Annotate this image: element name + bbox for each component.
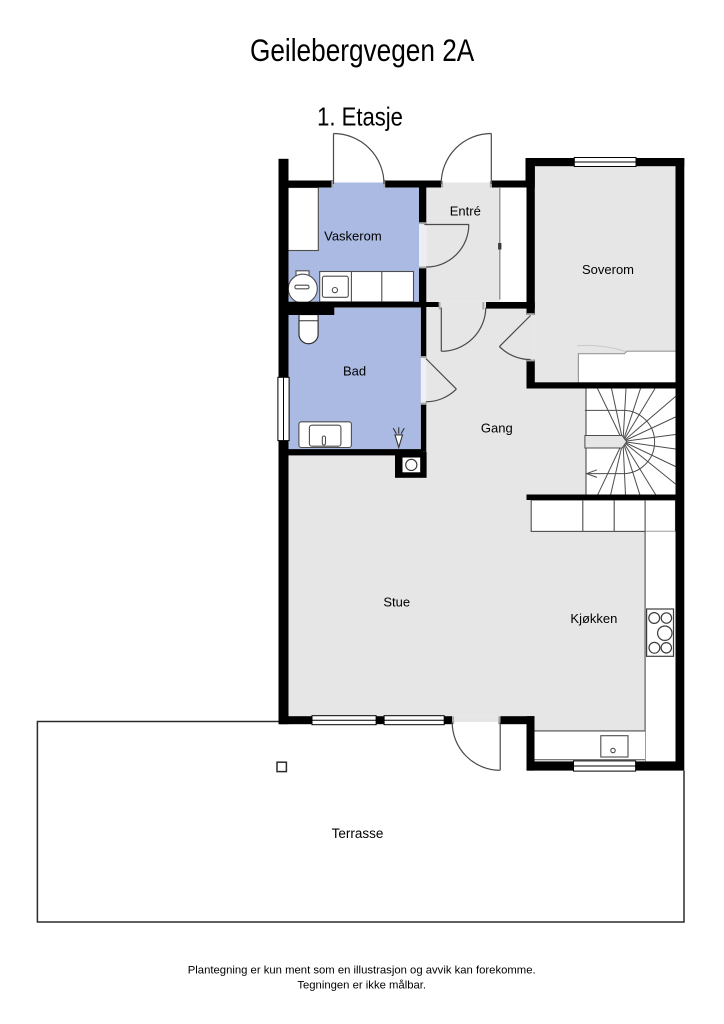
svg-text:Bad: Bad (343, 363, 366, 378)
svg-text:1. Etasje: 1. Etasje (317, 103, 403, 132)
svg-text:Kjøkken: Kjøkken (570, 611, 617, 626)
svg-text:Tegningen er ikke målbar.: Tegningen er ikke målbar. (297, 979, 426, 991)
svg-text:Geilebergvegen 2A: Geilebergvegen 2A (250, 34, 475, 69)
svg-text:Gang: Gang (481, 420, 513, 435)
svg-text:Terrasse: Terrasse (332, 826, 384, 841)
svg-text:Plantegning er kun ment som en: Plantegning er kun ment som en illustras… (188, 964, 536, 976)
svg-text:Stue: Stue (383, 595, 410, 610)
svg-text:Soverom: Soverom (582, 262, 634, 277)
svg-text:Vaskerom: Vaskerom (324, 229, 382, 244)
svg-text:Entré: Entré (450, 203, 481, 218)
